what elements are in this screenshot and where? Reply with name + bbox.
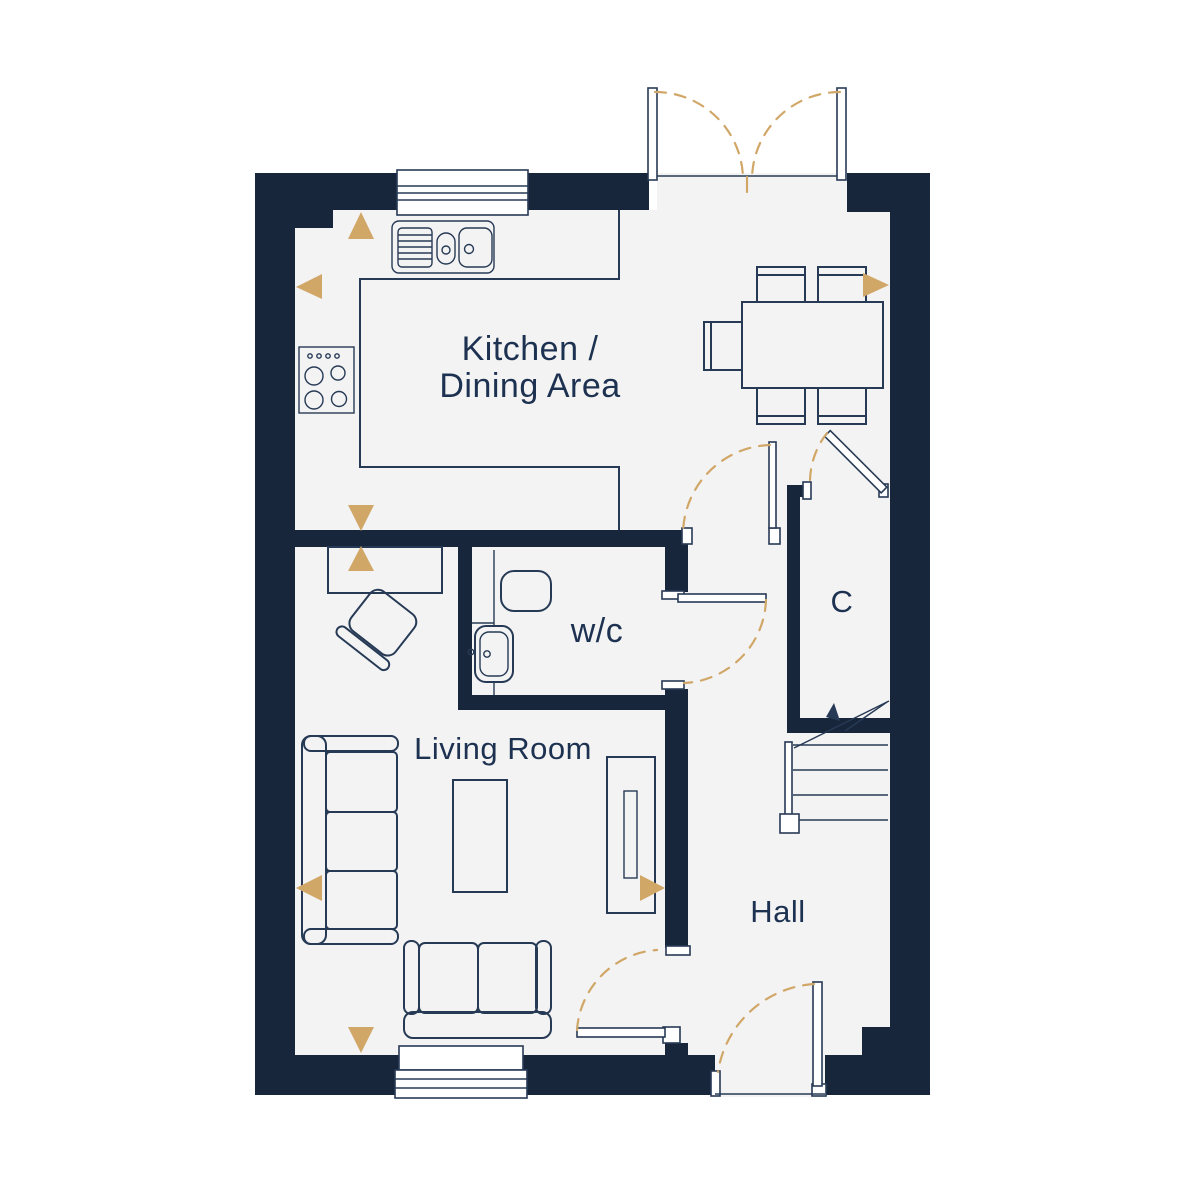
front-door-recess: [715, 1055, 825, 1097]
label-wc: w/c: [570, 612, 624, 650]
wall-wc-bottom: [458, 695, 670, 710]
wall-bottom-right: [825, 1055, 925, 1095]
door-leaf: [577, 1028, 665, 1037]
jamb: [682, 528, 692, 544]
door-leaf: [769, 442, 776, 528]
label-cupboard: C: [831, 584, 854, 619]
newel-post: [780, 814, 799, 833]
jamb: [666, 946, 690, 955]
wall-wc-left: [458, 547, 472, 710]
label-hall: Hall: [750, 894, 805, 929]
french-door-leaf-right: [837, 88, 846, 180]
jamb: [803, 482, 811, 499]
window-bottom: [395, 1046, 527, 1098]
wall-left: [255, 173, 295, 1095]
door-leaf: [678, 594, 766, 602]
wall-living-hall: [665, 710, 688, 948]
stair-handrail: [785, 742, 792, 820]
wall-kitchen-living: [295, 530, 683, 547]
wall-wc-right-lower: [665, 689, 688, 710]
jamb: [769, 528, 780, 544]
french-door-leaf-left: [648, 88, 657, 180]
dining-table: [742, 302, 883, 388]
basin: [468, 626, 513, 682]
wall-right: [890, 173, 930, 1095]
door-leaf: [813, 982, 822, 1086]
label-living-room: Living Room: [414, 731, 592, 766]
wall-living-hall-stub: [665, 1043, 688, 1057]
toilet: [501, 571, 551, 611]
label-kitchen-line2: Dining Area: [439, 367, 620, 405]
jamb: [711, 1071, 720, 1096]
wall-cupboard-left: [787, 497, 800, 733]
window-top: [397, 170, 528, 215]
entrance-recess: [657, 173, 847, 212]
label-kitchen-line1: Kitchen /: [462, 330, 599, 368]
floor-plan: Kitchen / Dining Area w/c Living Room Ha…: [0, 0, 1200, 1200]
jamb: [662, 681, 684, 689]
